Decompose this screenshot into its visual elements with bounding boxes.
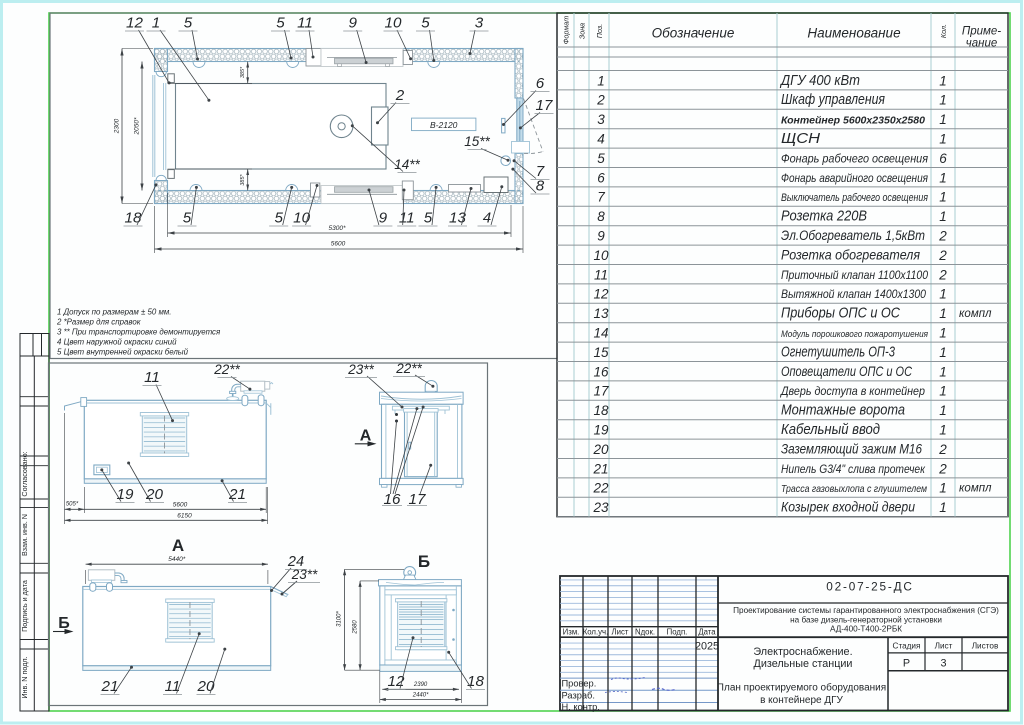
svg-text:17: 17 <box>593 384 609 399</box>
svg-text:Выключатель рабочего освещения: Выключатель рабочего освещения <box>781 192 928 204</box>
svg-text:22**: 22** <box>395 361 422 376</box>
svg-text:2580: 2580 <box>352 620 358 635</box>
svg-text:компл: компл <box>959 308 992 320</box>
svg-text:12: 12 <box>126 15 143 32</box>
svg-text:1: 1 <box>939 423 947 438</box>
svg-text:6: 6 <box>597 170 605 185</box>
svg-text:1: 1 <box>939 170 947 185</box>
svg-text:19: 19 <box>593 423 609 438</box>
svg-text:Проектирование системы гаран: Проектирование системы гарантированного … <box>733 606 999 615</box>
svg-text:на базе дизель-генераторной: на базе дизель-генераторной установки <box>790 616 942 625</box>
svg-text:11: 11 <box>297 15 313 32</box>
svg-text:23**: 23** <box>347 362 374 377</box>
svg-text:5: 5 <box>184 15 193 32</box>
svg-text:02-07-25-ДС: 02-07-25-ДС <box>826 580 913 594</box>
svg-text:4 Цвет наружной окраски синий: 4 Цвет наружной окраски синий <box>57 338 177 347</box>
svg-text:2440*: 2440* <box>412 692 429 698</box>
svg-text:Огнетушитель ОП-3: Огнетушитель ОП-3 <box>781 344 895 360</box>
svg-text:23: 23 <box>592 500 609 515</box>
svg-text:16: 16 <box>593 364 609 379</box>
svg-text:2300: 2300 <box>114 118 121 134</box>
svg-text:1: 1 <box>939 403 947 418</box>
svg-text:14: 14 <box>593 326 608 341</box>
svg-text:7: 7 <box>597 190 605 205</box>
svg-text:2025: 2025 <box>695 641 719 653</box>
svg-text:2: 2 <box>596 93 605 108</box>
svg-text:385*: 385* <box>240 173 246 185</box>
svg-text:1: 1 <box>939 190 947 205</box>
svg-text:2 *Размер для справок: 2 *Размер для справок <box>56 318 141 327</box>
svg-text:Приточный клапан 1100х1100: Приточный клапан 1100х1100 <box>781 268 928 282</box>
svg-text:21: 21 <box>592 461 608 476</box>
svg-text:2: 2 <box>938 267 947 282</box>
svg-text:1: 1 <box>939 112 947 127</box>
svg-text:13: 13 <box>593 306 609 321</box>
svg-text:Провер.: Провер. <box>562 678 597 688</box>
svg-text:Приборы ОПС и ОС: Приборы ОПС и ОС <box>781 305 900 322</box>
svg-text:10: 10 <box>593 248 609 263</box>
svg-text:Изм.: Изм. <box>563 628 580 637</box>
svg-text:Модуль порошкового пожаротушен: Модуль порошкового пожаротушения <box>781 329 928 339</box>
svg-text:5: 5 <box>276 15 285 32</box>
svg-text:ЩСН: ЩСН <box>781 130 820 147</box>
svg-text:1: 1 <box>939 481 947 496</box>
svg-text:Кабельный ввод: Кабельный ввод <box>781 422 880 438</box>
svg-text:3: 3 <box>940 658 946 670</box>
svg-text:5300*: 5300* <box>329 225 346 232</box>
svg-text:2: 2 <box>938 442 947 457</box>
svg-text:15**: 15** <box>464 134 490 149</box>
svg-text:Поз.: Поз. <box>595 24 604 38</box>
svg-text:Кол.: Кол. <box>939 24 948 38</box>
svg-text:505*: 505* <box>66 502 79 508</box>
svg-text:Дата: Дата <box>698 628 716 637</box>
svg-text:3100*: 3100* <box>337 610 343 626</box>
svg-text:22**: 22** <box>213 362 240 377</box>
svg-text:План проектируемого оборудов: План проектируемого оборудования <box>717 682 886 694</box>
svg-text:Фонарь рабочего освещения: Фонарь рабочего освещения <box>781 151 928 165</box>
svg-text:9: 9 <box>597 229 605 244</box>
svg-text:14**: 14** <box>394 157 420 172</box>
svg-text:В-2120: В-2120 <box>430 120 458 130</box>
svg-text:5: 5 <box>597 151 605 166</box>
svg-text:Инв. N подл.: Инв. N подл. <box>20 656 29 698</box>
svg-text:Дверь доступа в контейнер: Дверь доступа в контейнер <box>779 384 925 398</box>
svg-text:2: 2 <box>938 229 947 244</box>
svg-text:Зона: Зона <box>578 23 587 39</box>
svg-text:17: 17 <box>536 97 553 114</box>
svg-text:5: 5 <box>421 15 430 32</box>
svg-text:12: 12 <box>388 673 405 690</box>
svg-text:11: 11 <box>594 267 608 282</box>
svg-text:Лист: Лист <box>935 642 953 651</box>
svg-text:22: 22 <box>592 481 609 496</box>
svg-text:Розетка обогревателя: Розетка обогревателя <box>781 246 920 262</box>
svg-text:18: 18 <box>593 403 609 418</box>
svg-text:1: 1 <box>939 93 947 108</box>
svg-text:Фонарь аварийного освещения: Фонарь аварийного освещения <box>781 172 928 185</box>
svg-text:2: 2 <box>395 87 405 104</box>
svg-text:9: 9 <box>379 210 388 227</box>
svg-text:11: 11 <box>165 678 181 695</box>
svg-text:Взам. инв. N: Взам. инв. N <box>20 514 29 556</box>
svg-text:компл: компл <box>959 483 992 495</box>
svg-text:4: 4 <box>483 210 491 227</box>
svg-text:6: 6 <box>536 75 545 92</box>
svg-text:Формат: Формат <box>562 16 571 45</box>
svg-text:1: 1 <box>939 326 947 341</box>
svg-text:Дизельные станции: Дизельные станции <box>754 658 853 670</box>
svg-text:Листов: Листов <box>972 642 999 651</box>
svg-text:Контейнер 5600х2350х2580: Контейнер 5600х2350х2580 <box>781 116 925 127</box>
svg-text:А: А <box>172 536 184 555</box>
svg-text:Заземляющий зажим М16: Заземляющий зажим М16 <box>781 441 922 456</box>
svg-text:Приме-: Приме- <box>962 26 1001 38</box>
svg-text:15: 15 <box>593 345 609 360</box>
svg-text:Электроснабжение.: Электроснабжение. <box>753 646 852 658</box>
svg-text:1: 1 <box>939 384 947 399</box>
svg-text:Стадия: Стадия <box>893 642 921 651</box>
svg-text:11: 11 <box>399 210 415 227</box>
svg-text:6: 6 <box>939 151 947 166</box>
svg-text:Оповещатели ОПС и ОС: Оповещатели ОПС и ОС <box>781 364 913 379</box>
svg-text:11: 11 <box>144 369 160 386</box>
svg-text:Б: Б <box>58 615 70 632</box>
svg-text:20: 20 <box>592 442 609 457</box>
svg-text:9: 9 <box>348 15 357 32</box>
svg-text:8: 8 <box>597 209 605 224</box>
svg-text:385*: 385* <box>240 66 246 78</box>
svg-text:Монтажные ворота: Монтажные ворота <box>781 403 905 419</box>
svg-text:5: 5 <box>274 210 283 227</box>
svg-text:2390: 2390 <box>413 682 428 688</box>
svg-text:1: 1 <box>939 500 947 515</box>
svg-text:чание: чание <box>966 38 997 50</box>
svg-text:13: 13 <box>449 210 466 227</box>
svg-text:18: 18 <box>467 673 484 690</box>
svg-text:Кол.уч.: Кол.уч. <box>583 628 609 637</box>
svg-text:в контейнере ДГУ: в контейнере ДГУ <box>760 695 843 706</box>
svg-text:10: 10 <box>385 15 402 32</box>
svg-text:5: 5 <box>183 210 192 227</box>
svg-text:1: 1 <box>939 73 947 88</box>
svg-text:3: 3 <box>597 112 605 127</box>
svg-text:1: 1 <box>939 306 947 321</box>
svg-text:23**: 23** <box>291 567 318 582</box>
svg-text:Н. контр.: Н. контр. <box>562 702 600 712</box>
svg-text:1: 1 <box>939 287 947 302</box>
svg-text:1: 1 <box>939 364 947 379</box>
svg-text:АД-400-Т400-2РБК: АД-400-Т400-2РБК <box>830 625 902 634</box>
svg-text:4: 4 <box>597 132 605 147</box>
svg-text:8: 8 <box>536 178 545 195</box>
svg-text:Разраб.: Разраб. <box>562 690 595 700</box>
svg-text:Лист: Лист <box>612 628 629 637</box>
svg-text:2: 2 <box>938 461 947 476</box>
svg-text:21: 21 <box>228 486 246 503</box>
svg-text:5600: 5600 <box>173 502 188 509</box>
svg-text:20: 20 <box>145 486 163 503</box>
svg-text:1: 1 <box>939 209 947 224</box>
svg-text:Согласовано:: Согласовано: <box>20 451 29 496</box>
svg-text:18: 18 <box>125 210 142 227</box>
svg-text:Обозначение: Обозначение <box>652 26 735 41</box>
svg-text:Наименование: Наименование <box>807 26 900 41</box>
svg-text:Вытяжной клапан 1400х1300: Вытяжной клапан 1400х1300 <box>781 287 926 301</box>
svg-text:Розетка 220В: Розетка 220В <box>781 208 867 225</box>
svg-text:2: 2 <box>938 248 947 263</box>
svg-text:12: 12 <box>593 287 609 302</box>
svg-text:19: 19 <box>117 486 134 503</box>
svg-text:Трасса газовыхлопа с глушителе: Трасса газовыхлопа с глушителем <box>781 484 927 495</box>
svg-text:5440*: 5440* <box>168 556 185 563</box>
svg-text:1: 1 <box>152 15 160 32</box>
svg-text:1: 1 <box>939 132 947 147</box>
svg-text:21: 21 <box>101 678 119 695</box>
svg-text:1 Допуск по размерам ± 50 мм.: 1 Допуск по размерам ± 50 мм. <box>57 308 171 317</box>
svg-text:Б: Б <box>418 552 430 571</box>
svg-text:3: 3 <box>475 15 484 32</box>
svg-text:Эл.Обогреватель 1,5кВт: Эл.Обогреватель 1,5кВт <box>781 228 925 243</box>
svg-text:Подп.: Подп. <box>667 628 688 637</box>
svg-text:6150: 6150 <box>177 512 192 519</box>
svg-text:1: 1 <box>597 73 605 88</box>
svg-text:Подпись и дата: Подпись и дата <box>20 580 29 632</box>
svg-text:5: 5 <box>424 210 433 227</box>
svg-text:Шкаф управления: Шкаф управления <box>781 91 885 108</box>
svg-text:5 Цвет внутренней окраски белы: 5 Цвет внутренней окраски белый <box>57 348 189 357</box>
svg-text:Р: Р <box>903 658 910 670</box>
svg-text:3 ** При транспортировке демон: 3 ** При транспортировке демонтируется <box>57 328 221 337</box>
svg-text:1: 1 <box>939 345 947 360</box>
svg-text:ДГУ 400 кВт: ДГУ 400 кВт <box>779 72 860 89</box>
svg-text:5600: 5600 <box>331 241 346 248</box>
svg-text:Nдок.: Nдок. <box>635 628 655 637</box>
svg-text:2050*: 2050* <box>134 117 141 135</box>
svg-text:Козырек входной двери: Козырек входной двери <box>781 500 915 515</box>
svg-text:Нипель G3/4" слива протечек: Нипель G3/4" слива протечек <box>781 462 925 476</box>
